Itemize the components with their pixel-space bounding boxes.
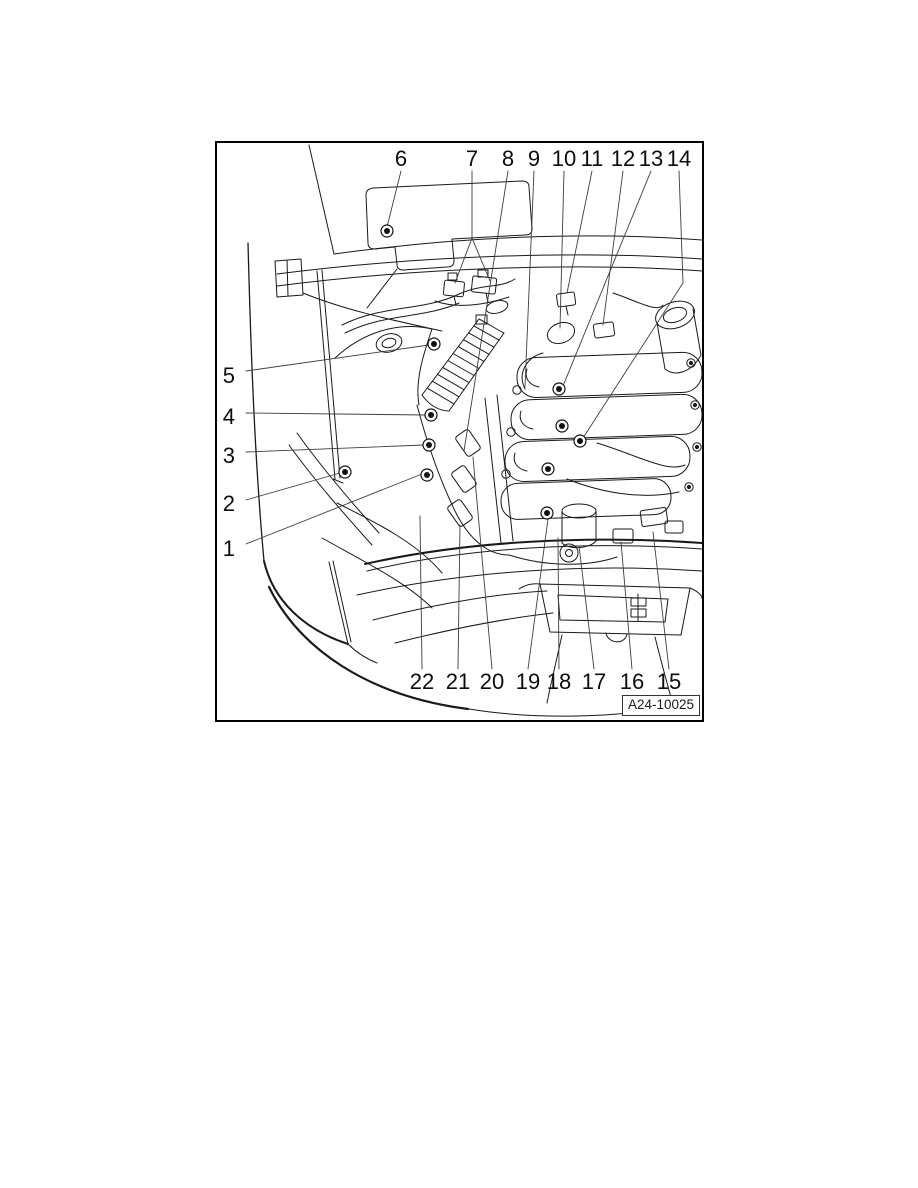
callout-4: 4 <box>211 405 235 429</box>
callout-19: 19 <box>516 670 540 694</box>
figure-code: A24-10025 <box>622 695 700 716</box>
intake-manifold-runners <box>500 352 702 520</box>
callout-13: 13 <box>639 147 663 171</box>
callout-18: 18 <box>547 670 571 694</box>
callout-9: 9 <box>528 147 540 171</box>
callout-20: 20 <box>480 670 504 694</box>
callout-11: 11 <box>581 147 604 171</box>
engine-lines <box>322 270 701 608</box>
callout-12: 12 <box>611 147 635 171</box>
callout-21: 21 <box>446 670 470 694</box>
engine-bay-line-art <box>217 143 702 720</box>
page: { "figure": { "description": "engine-com… <box>0 0 918 1188</box>
leader-lines <box>246 171 683 669</box>
callout-8: 8 <box>502 147 514 171</box>
callout-14: 14 <box>667 147 691 171</box>
callout-7: 7 <box>466 147 478 171</box>
callout-22: 22 <box>410 670 434 694</box>
callout-10: 10 <box>552 147 576 171</box>
callout-dot-markers <box>339 225 586 519</box>
callout-15: 15 <box>657 670 681 694</box>
hood-plate-outline <box>366 181 532 308</box>
hood-and-fender-lines <box>248 145 702 709</box>
callout-6: 6 <box>395 147 407 171</box>
callout-5: 5 <box>211 364 235 388</box>
figure-frame: 6 7 8 9 10 11 12 13 14 5 4 3 2 1 22 21 2… <box>215 141 704 722</box>
callout-16: 16 <box>620 670 644 694</box>
callout-17: 17 <box>582 670 606 694</box>
callout-2: 2 <box>211 492 235 516</box>
callout-1: 1 <box>211 537 235 561</box>
callout-3: 3 <box>211 444 235 468</box>
